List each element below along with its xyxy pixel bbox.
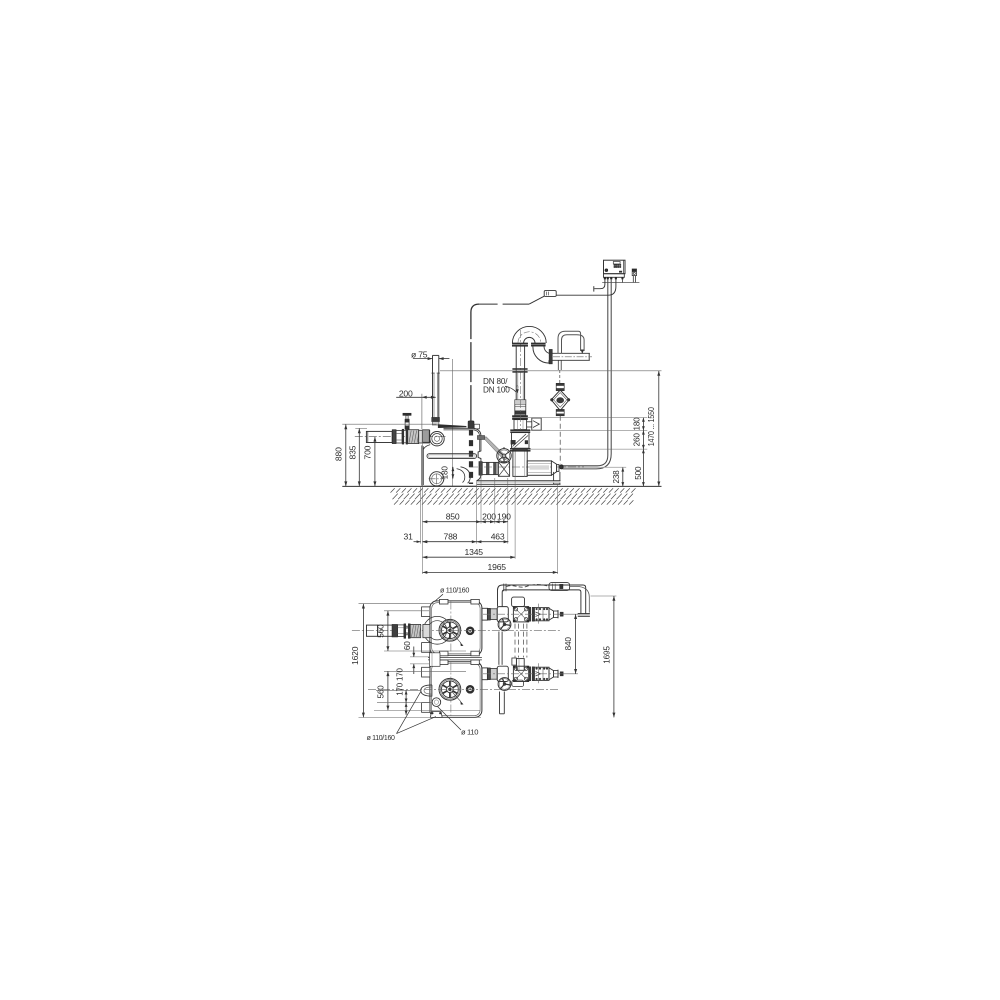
svg-text:1470 ... 1550: 1470 ... 1550: [647, 407, 656, 447]
svg-text:1345: 1345: [465, 547, 484, 557]
svg-text:788: 788: [444, 531, 458, 541]
svg-text:880: 880: [334, 447, 344, 461]
svg-text:1965: 1965: [488, 562, 507, 572]
svg-text:560: 560: [377, 685, 386, 699]
svg-text:463: 463: [491, 531, 505, 541]
svg-text:180: 180: [441, 466, 450, 480]
svg-text:850: 850: [446, 511, 460, 521]
svg-text:1695: 1695: [602, 646, 611, 664]
svg-text:31: 31: [404, 531, 414, 541]
svg-text:840: 840: [564, 637, 573, 651]
svg-text:170 170: 170 170: [396, 667, 405, 695]
svg-text:180: 180: [633, 417, 642, 431]
svg-text:1620: 1620: [350, 646, 360, 665]
svg-text:200: 200: [482, 511, 496, 521]
svg-text:60: 60: [403, 641, 412, 650]
svg-text:ø 110: ø 110: [461, 728, 478, 737]
svg-text:835: 835: [347, 445, 357, 459]
svg-text:500: 500: [634, 466, 643, 480]
svg-text:260: 260: [633, 433, 642, 447]
svg-text:ø 110/160: ø 110/160: [440, 586, 469, 595]
svg-text:560: 560: [377, 624, 386, 638]
svg-text:238: 238: [612, 470, 621, 484]
svg-text:700: 700: [362, 445, 372, 459]
svg-text:ø 110/160: ø 110/160: [367, 733, 395, 742]
svg-text:190: 190: [497, 511, 511, 521]
svg-text:ø 75: ø 75: [411, 349, 428, 359]
